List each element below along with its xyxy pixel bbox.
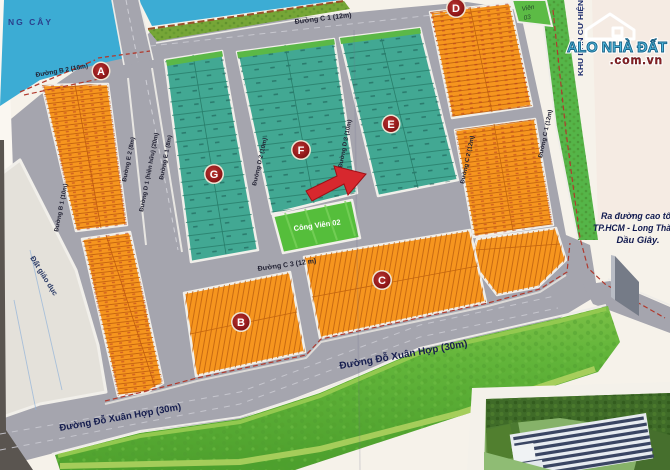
svg-text:A: A: [97, 66, 105, 78]
svg-text:Ra đường cao tố: Ra đường cao tố: [601, 211, 670, 221]
svg-text:C: C: [378, 275, 386, 287]
svg-text:E: E: [387, 119, 394, 131]
svg-text:G: G: [210, 169, 219, 181]
svg-text:.com.vn: .com.vn: [610, 53, 662, 67]
svg-text:TP.HCM - Long Thà: TP.HCM - Long Thà: [593, 223, 670, 233]
svg-text:D: D: [452, 3, 460, 15]
svg-text:Dầu Giây.: Dầu Giây.: [617, 235, 660, 245]
svg-text:NG CÂY: NG CÂY: [8, 16, 53, 27]
svg-text:KHU DÂN CƯ HIỆN: KHU DÂN CƯ HIỆN: [576, 0, 585, 76]
svg-text:B: B: [237, 317, 245, 329]
svg-text:F: F: [298, 145, 305, 157]
